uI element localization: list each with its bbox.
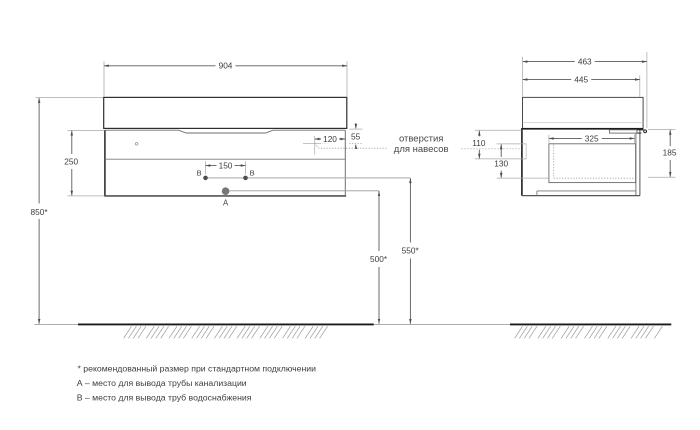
svg-text:500*: 500*: [370, 254, 388, 264]
svg-text:150: 150: [219, 161, 233, 171]
svg-text:250: 250: [64, 157, 78, 167]
svg-text:445: 445: [574, 75, 588, 85]
svg-text:463: 463: [578, 57, 592, 67]
svg-text:120: 120: [323, 134, 337, 144]
svg-text:A: A: [223, 198, 229, 207]
svg-text:B: B: [250, 168, 255, 177]
svg-text:325: 325: [585, 133, 599, 143]
svg-text:110: 110: [472, 138, 486, 148]
svg-text:для навесов: для навесов: [394, 144, 449, 155]
svg-text:55: 55: [351, 131, 361, 141]
svg-text:А – место для вывода трубы кан: А – место для вывода трубы канализации: [77, 378, 247, 388]
svg-text:130: 130: [494, 159, 508, 169]
svg-text:850*: 850*: [31, 207, 49, 217]
svg-text:550*: 550*: [402, 246, 420, 256]
svg-text:В – место для вывода труб водо: В – место для вывода труб водоснабжения: [77, 392, 252, 402]
svg-text:* рекомендованный размер при с: * рекомендованный размер при стандартном…: [78, 364, 317, 374]
svg-text:B: B: [197, 168, 202, 177]
svg-text:904: 904: [219, 61, 233, 71]
svg-text:185: 185: [663, 148, 677, 158]
